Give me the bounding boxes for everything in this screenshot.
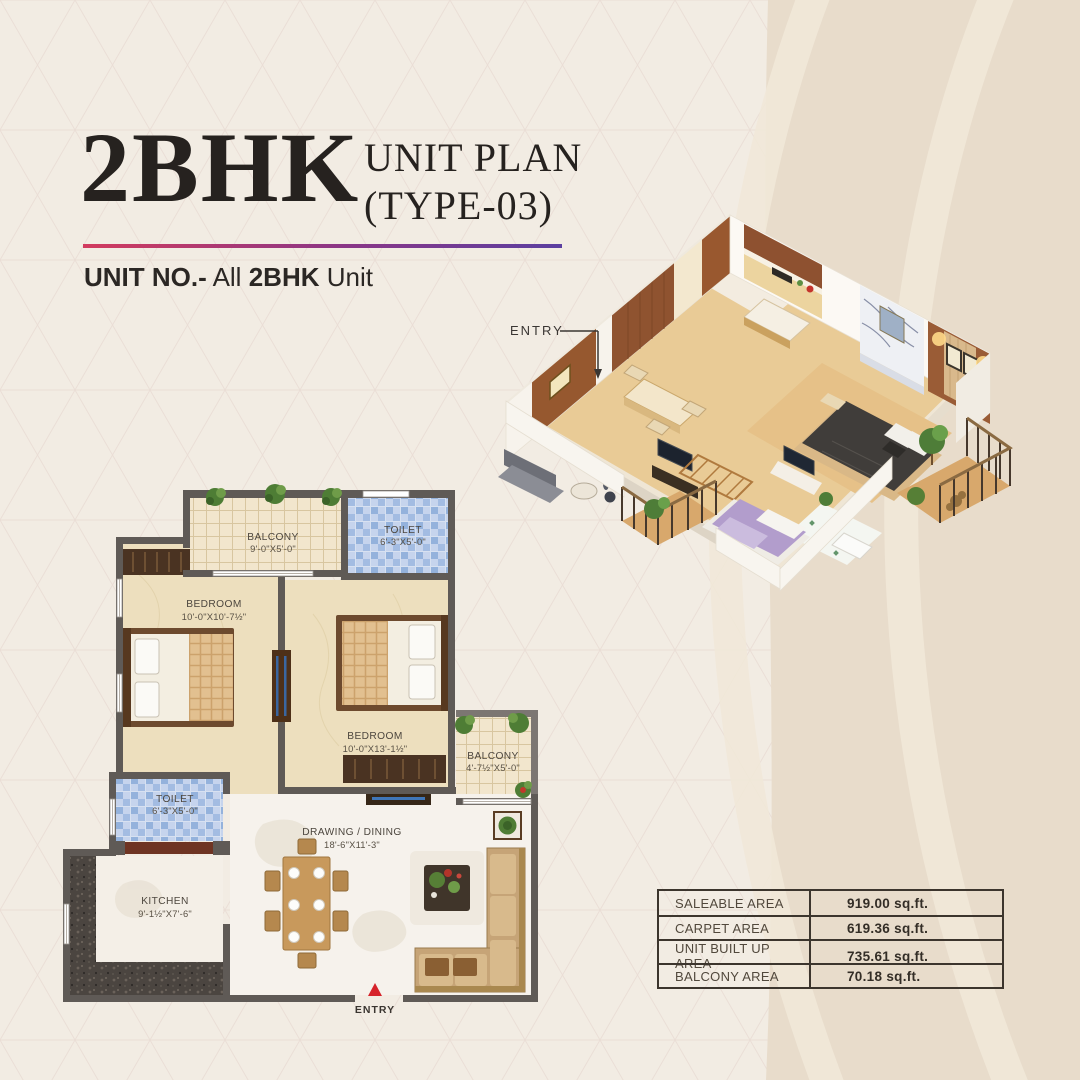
unit-no-label: UNIT NO.- [84,262,207,292]
poster-canvas: 2BHK UNIT PLAN (TYPE-03) UNIT NO.- All 2… [0,0,1080,1080]
wall-lamp-glow [932,332,946,346]
room-label-bedroom-2: BEDROOM [347,731,402,742]
table-row: UNIT BUILT UP AREA 735.61 sq.ft. [659,939,1002,963]
unit-number-line: UNIT NO.- All 2BHK Unit [84,262,373,293]
room-label-balcony-right: BALCONY [467,751,519,762]
entry-label-3d: ENTRY [510,323,564,338]
svg-text:10'-0"X13'-1½": 10'-0"X13'-1½" [343,743,408,754]
entry-label-2d: ENTRY [355,1004,395,1016]
svg-text:9'-1½"X7'-6": 9'-1½"X7'-6" [138,908,192,919]
room-label-kitchen: KITCHEN [141,896,189,907]
room-label-toilet-bottom: TOILET [156,794,194,805]
subtitle-line1: UNIT PLAN [364,134,582,182]
svg-text:6'-3"X5'-0": 6'-3"X5'-0" [380,536,426,547]
svg-text:18'-6"X11'-3": 18'-6"X11'-3" [324,839,380,850]
throw-pillow [425,958,449,976]
room-label-toilet-top: TOILET [384,525,422,536]
room-label-drawing-dining: DRAWING / DINING [302,827,401,838]
accent-divider [83,244,562,248]
area-label: SALEABLE AREA [659,891,809,915]
area-value: 619.36 sq.ft. [809,917,1002,939]
svg-text:10'-0"X10'-7½": 10'-0"X10'-7½" [182,611,247,622]
door [272,650,291,722]
table-row: BALCONY AREA 70.18 sq.ft. [659,963,1002,987]
page-title: 2BHK [80,118,360,218]
plant-icon [819,492,833,506]
area-label: BALCONY AREA [659,965,809,987]
fruit-bowl [807,286,814,293]
wardrobe [343,755,446,783]
area-value: 70.18 sq.ft. [809,965,1002,987]
coffee-table-3d [571,483,597,499]
floor-plan-3d: ENTRY [492,203,1042,608]
area-value: 919.00 sq.ft. [809,891,1002,915]
svg-text:6'-3"X5'-0": 6'-3"X5'-0" [152,805,198,816]
area-table: SALEABLE AREA 919.00 sq.ft. CARPET AREA … [657,889,1004,989]
door-threshold [125,842,213,854]
svg-text:4'-7½"X5'-0": 4'-7½"X5'-0" [466,762,520,773]
svg-text:9'-0"X5'-0": 9'-0"X5'-0" [250,543,296,554]
room-label-bedroom-1: BEDROOM [186,599,241,610]
table-row: SALEABLE AREA 919.00 sq.ft. [659,891,1002,915]
room-label-balcony-top: BALCONY [247,532,299,543]
table-row: CARPET AREA 619.36 sq.ft. [659,915,1002,939]
floor-plan-2d: BALCONY 9'-0"X5'-0" TOILET 6'-3"X5'-0" B… [63,484,545,1019]
floor-vase [605,492,616,503]
area-label: CARPET AREA [659,917,809,939]
